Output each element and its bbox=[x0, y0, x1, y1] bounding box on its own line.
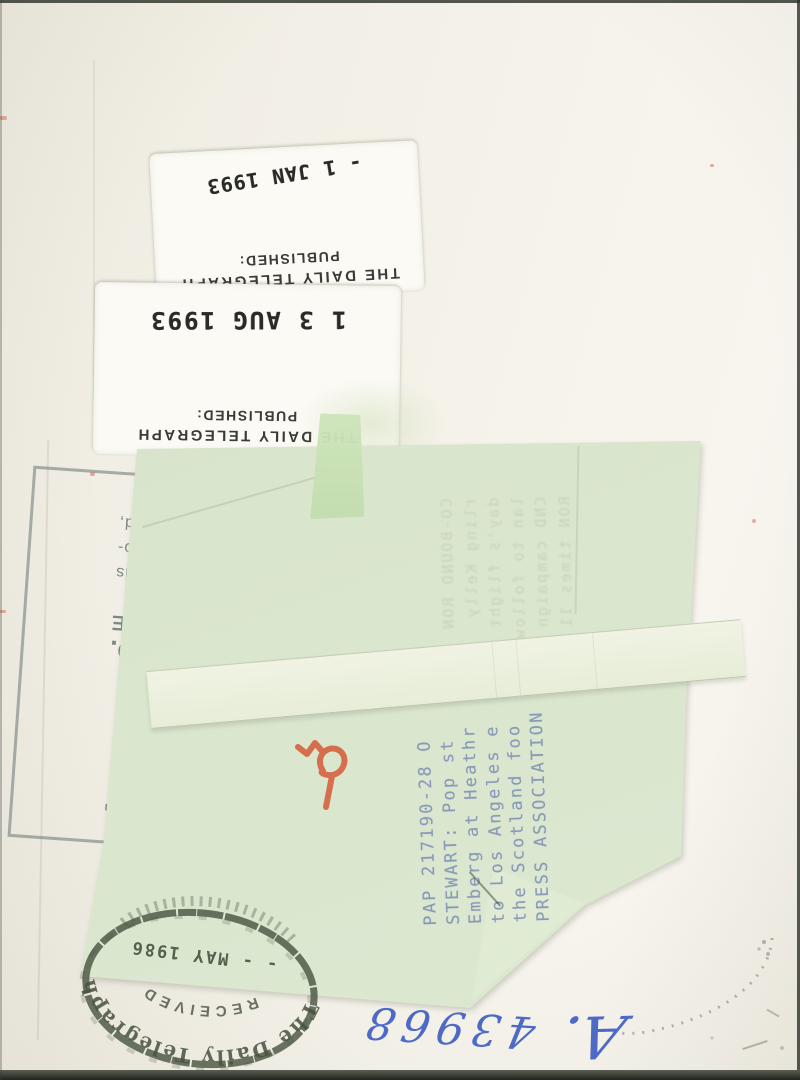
showthrough-line: rling Kelly bbox=[459, 498, 485, 642]
received-stamp-date: - - MAY 1986 bbox=[130, 937, 279, 975]
showthrough-line: CND campaign bbox=[529, 497, 555, 641]
showthrough-line: RON times 11 bbox=[553, 496, 579, 640]
showthrough-line: day's flight bbox=[482, 497, 508, 641]
showthrough-line: lan to follow bbox=[506, 497, 532, 641]
showthrough-text: CO-BOUND RON rling Kelly day's flight la… bbox=[435, 496, 578, 642]
handwritten-prefix: A. bbox=[554, 1006, 631, 1067]
received-stamp-status: RECEIVED bbox=[135, 979, 262, 1026]
handwritten-digits: 43968 bbox=[355, 997, 540, 1058]
typed-caption: PAP 217190-28 O STEWART: Pop st Emberg a… bbox=[413, 710, 556, 926]
showthrough-line: CO-BOUND RON bbox=[435, 498, 461, 642]
received-stamp: The Daily Telegraph RECEIVED - - MAY 198… bbox=[74, 896, 326, 1080]
green-tape-tab bbox=[310, 413, 368, 521]
photo-back-scan: IT LTD. 4BE nce is photo- ued, CO-BOUND … bbox=[0, 0, 800, 1080]
svg-text:RECEIVED: RECEIVED bbox=[135, 979, 262, 1026]
red-crayon-mark bbox=[290, 733, 362, 817]
